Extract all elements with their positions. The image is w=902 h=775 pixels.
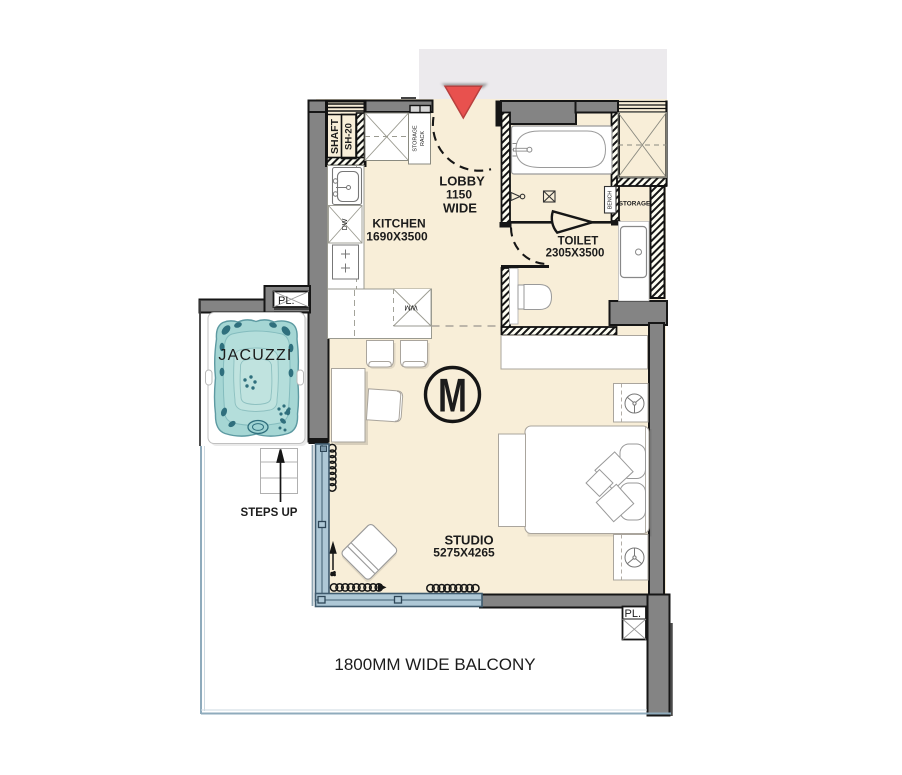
svg-text:STEPS UP: STEPS UP <box>241 507 298 519</box>
svg-text:2305X3500: 2305X3500 <box>546 248 605 260</box>
svg-text:st: st <box>331 572 336 578</box>
svg-text:PL.: PL. <box>625 608 642 620</box>
svg-text:1800MM WIDE BALCONY: 1800MM WIDE BALCONY <box>334 655 535 674</box>
svg-text:DW: DW <box>342 218 349 230</box>
svg-text:SHAFT: SHAFT <box>329 118 341 154</box>
svg-text:BENCH: BENCH <box>607 191 613 209</box>
svg-text:STORAGE: STORAGE <box>413 125 419 152</box>
svg-text:STORAGE: STORAGE <box>619 201 651 208</box>
svg-text:JACUZZI: JACUZZI <box>218 347 292 364</box>
svg-text:M: M <box>438 369 467 421</box>
svg-text:1690X3500: 1690X3500 <box>366 230 428 244</box>
svg-text:1150: 1150 <box>446 188 472 202</box>
svg-text:TOILET: TOILET <box>558 236 599 248</box>
svg-text:5275X4265: 5275X4265 <box>433 546 495 560</box>
svg-text:WIDE: WIDE <box>443 201 477 216</box>
svg-text:LOBBY: LOBBY <box>439 174 485 189</box>
svg-text:SH-20: SH-20 <box>343 123 354 150</box>
svg-text:KITCHEN: KITCHEN <box>372 217 425 231</box>
svg-text:PL.: PL. <box>278 295 295 307</box>
svg-text:RACK: RACK <box>420 131 426 146</box>
svg-text:WM: WM <box>404 304 417 313</box>
